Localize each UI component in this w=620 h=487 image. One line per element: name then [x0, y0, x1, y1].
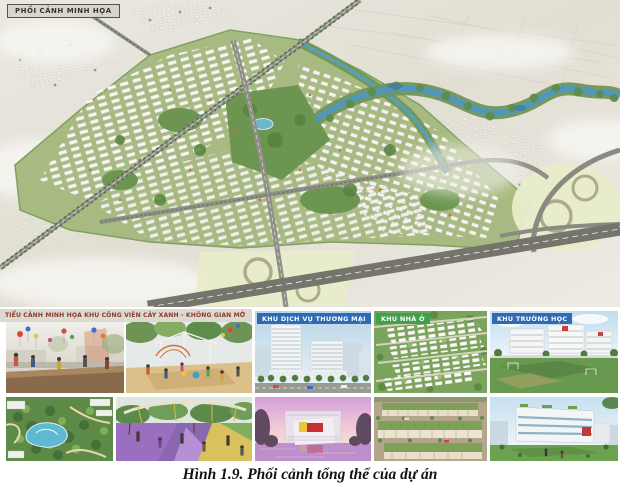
masterplan-aerial-rendering: PHỐI CẢNH MINH HỌA	[0, 0, 620, 307]
park-section-label: TIỂU CẢNH MINH HỌA KHU CÔNG VIÊN CÂY XAN…	[0, 309, 252, 322]
residential-shophouse-photo	[374, 397, 487, 461]
school-building-photo	[490, 397, 618, 461]
document-page: PHỐI CẢNH MINH HỌA TIỂU CẢNH MINH HỌA KH…	[0, 0, 620, 487]
commercial-mall-art	[255, 397, 371, 461]
park-aerial-lagoon-photo	[6, 397, 113, 461]
figure-caption: Hình 1.9. Phối cảnh tổng thể của dự án	[0, 462, 620, 487]
park-playground-sand-photo	[126, 322, 252, 393]
residential-aerial-photo: KHU NHÀ Ở	[374, 311, 487, 393]
park-plaza-canopy-photo	[116, 397, 252, 461]
commercial-towers-photo: KHU DỊCH VỤ THƯƠNG MẠI	[255, 311, 371, 393]
school-campus-photo: KHU TRƯỜNG HỌC	[490, 311, 618, 393]
aerial-perspective-label: PHỐI CẢNH MINH HỌA	[7, 4, 120, 18]
park-plaza-art	[116, 397, 252, 461]
park-deck-art	[6, 322, 124, 393]
aerial-art	[0, 0, 620, 307]
park-sand-art	[126, 322, 252, 393]
commercial-area-label: KHU DỊCH VỤ THƯƠNG MẠI	[257, 313, 371, 324]
residential-area-label: KHU NHÀ Ở	[376, 313, 430, 324]
commercial-waterfront-mall-photo	[255, 397, 371, 461]
residential-shophouse-art	[374, 397, 487, 461]
school-area-label: KHU TRƯỜNG HỌC	[492, 313, 572, 324]
park-lagoon-art	[6, 397, 113, 461]
park-playground-deck-photo	[6, 322, 124, 393]
school-building-art	[490, 397, 618, 461]
